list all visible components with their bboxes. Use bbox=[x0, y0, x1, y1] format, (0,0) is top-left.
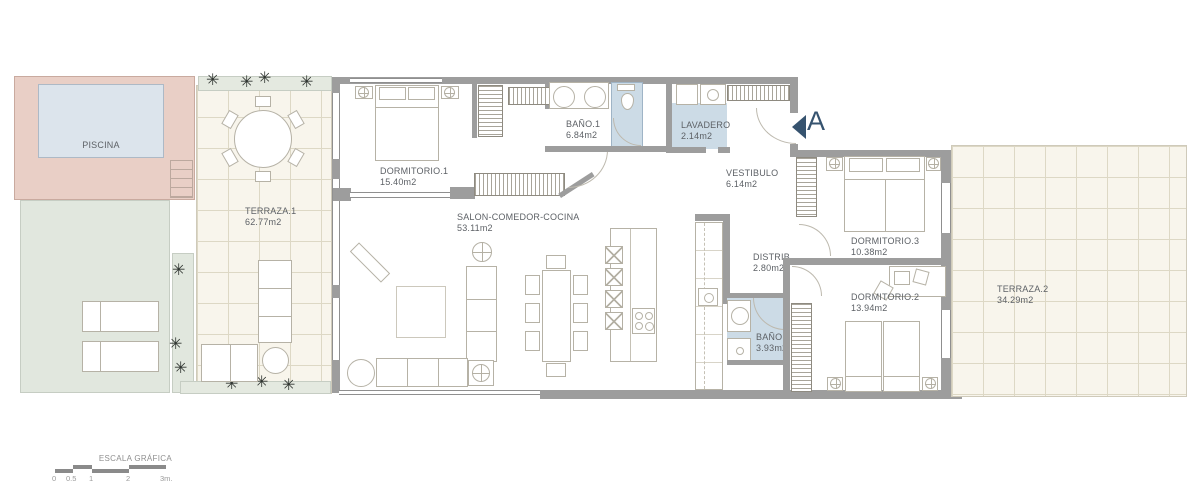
plant-icon: ✳ bbox=[258, 70, 271, 86]
sofa-cushion-line bbox=[407, 359, 408, 386]
room-label-vestibulo: VESTIBULO6.14m2 bbox=[726, 168, 778, 190]
dining-chair bbox=[525, 303, 540, 323]
wall-left bbox=[332, 360, 340, 393]
dorm1-pillow bbox=[408, 87, 435, 100]
bar-stool bbox=[605, 246, 623, 264]
washer-drum bbox=[707, 89, 719, 101]
sofa bbox=[466, 266, 497, 362]
window-dorm2-east bbox=[941, 310, 951, 358]
scale-bar-segment bbox=[129, 465, 166, 469]
room-label-dormitorio3: DORMITORIO.310.38m2 bbox=[851, 236, 919, 258]
dorm3-wardrobe bbox=[796, 157, 817, 217]
sofa-cushion-line bbox=[259, 288, 291, 289]
dining-chair bbox=[573, 331, 588, 351]
scale-bar-segment bbox=[73, 465, 92, 469]
sun-lounger bbox=[82, 341, 159, 372]
bed-blanket-line bbox=[376, 107, 438, 108]
sofa bbox=[376, 358, 468, 387]
wall-bano1-south bbox=[545, 146, 670, 152]
plant-icon: ✳ bbox=[174, 360, 187, 376]
sun-lounger bbox=[82, 301, 159, 332]
room-terraza2 bbox=[951, 145, 1187, 397]
plant-icon: ✳ bbox=[206, 72, 219, 88]
wall-kitchen-right bbox=[723, 214, 730, 304]
entrance-marker-label: A bbox=[807, 108, 825, 135]
bed-center-line bbox=[885, 179, 886, 231]
kitchen-sink bbox=[698, 288, 718, 306]
dorm2-bed bbox=[883, 321, 920, 392]
wall-bano2-bottom bbox=[727, 360, 787, 365]
lamp-icon bbox=[358, 87, 369, 98]
room-label-salon: SALON-COMEDOR-COCINA53.11m2 bbox=[457, 212, 580, 234]
lavadero-counter bbox=[676, 84, 698, 105]
dorm2-wardrobe bbox=[791, 303, 812, 392]
outdoor-chair bbox=[255, 96, 271, 107]
washing-machine bbox=[700, 84, 726, 105]
sofa-cushion-line bbox=[467, 331, 496, 332]
floor-plan: PISCINA ✳ ✳ ✳ ✳ ✳ ✳ ✳ ✳ ✳ ✳ TERRAZA.162.… bbox=[0, 0, 1200, 494]
plant-icon: ✳ bbox=[300, 74, 313, 90]
dining-chair bbox=[573, 303, 588, 323]
bano2-sink bbox=[727, 300, 751, 332]
lamp-icon bbox=[829, 158, 840, 169]
dining-chair bbox=[546, 255, 566, 269]
bano2-basin bbox=[731, 307, 749, 325]
room-label-dormitorio1: DORMITORIO.115.40m2 bbox=[380, 166, 448, 188]
scale-tick: 2 bbox=[126, 474, 130, 483]
partition-dorm1 bbox=[350, 192, 452, 198]
kitchen-counter bbox=[695, 222, 723, 390]
sofa-cushion-line bbox=[230, 345, 231, 381]
wall-left bbox=[332, 77, 340, 93]
outdoor-round-table bbox=[234, 110, 292, 168]
wall-lavadero-south bbox=[666, 147, 706, 153]
wall-stub bbox=[450, 187, 475, 199]
bano1-sink bbox=[584, 86, 606, 108]
scale-tick: 1 bbox=[89, 474, 93, 483]
window-top-dorm1 bbox=[350, 78, 442, 83]
wall-left bbox=[332, 159, 340, 179]
scale-bar-segment bbox=[55, 469, 73, 473]
bano1-sink bbox=[553, 86, 575, 108]
room-label-piscina: PISCINA bbox=[39, 140, 163, 151]
room-label-dormitorio2: DORMITORIO.213.94m2 bbox=[851, 292, 919, 314]
desk-item bbox=[894, 271, 910, 285]
burner bbox=[645, 322, 654, 331]
dining-chair bbox=[546, 363, 566, 377]
toilet-cistern bbox=[617, 84, 635, 91]
room-label-bano1: BAÑO.16.84m2 bbox=[566, 119, 600, 141]
window-left bbox=[332, 93, 340, 159]
dorm3-pillow bbox=[886, 158, 920, 172]
dining-chair bbox=[525, 275, 540, 295]
wall-lavadero-south bbox=[718, 147, 730, 153]
lounger-headrest-line bbox=[100, 342, 101, 371]
pouf bbox=[347, 359, 375, 387]
plant-icon: ✳ bbox=[172, 262, 185, 278]
closet-rack bbox=[478, 85, 503, 137]
pool: PISCINA bbox=[38, 84, 164, 158]
outdoor-sofa bbox=[201, 344, 258, 382]
scale-title: ESCALA GRÁFICA bbox=[55, 454, 172, 463]
outdoor-side-table bbox=[262, 347, 289, 374]
bed-blanket-line bbox=[846, 376, 881, 377]
room-label-terraza2: TERRAZA.234.29m2 bbox=[997, 284, 1048, 306]
bar-stool bbox=[605, 312, 623, 330]
sofa-cushion-line bbox=[259, 316, 291, 317]
wall-closet-left bbox=[472, 83, 477, 138]
dining-chair bbox=[573, 275, 588, 295]
rug bbox=[396, 286, 446, 338]
desk-item bbox=[912, 268, 929, 285]
burner bbox=[635, 322, 643, 330]
faucet bbox=[704, 293, 714, 303]
window-dorm3-east bbox=[941, 183, 951, 233]
dorm3-pillow bbox=[849, 158, 883, 172]
burner bbox=[635, 312, 643, 320]
dorm2-bed bbox=[845, 321, 882, 392]
window-left bbox=[332, 298, 340, 360]
deck-steps bbox=[170, 160, 193, 198]
corridor-wardrobe bbox=[474, 173, 565, 196]
wall-stub bbox=[333, 188, 351, 201]
entrance-arrow-icon bbox=[792, 115, 806, 139]
cooktop bbox=[632, 308, 655, 334]
burner bbox=[645, 312, 653, 320]
dining-chair bbox=[525, 331, 540, 351]
lamp-icon bbox=[830, 378, 841, 389]
wall-left bbox=[332, 285, 340, 298]
dorm1-pillow bbox=[379, 87, 406, 100]
upper-cabinet-dashline bbox=[704, 223, 706, 389]
outdoor-sofa bbox=[258, 260, 292, 343]
island-divider bbox=[630, 229, 631, 361]
lamp-icon bbox=[444, 87, 455, 98]
plant-icon: ✳ bbox=[240, 74, 253, 90]
room-label-lavadero: LAVADERO2.14m2 bbox=[681, 120, 730, 142]
lounger-headrest-line bbox=[100, 302, 101, 331]
dining-table bbox=[542, 270, 571, 362]
scale-tick: 0.5 bbox=[66, 474, 76, 483]
wall-dorm2-west bbox=[783, 265, 790, 392]
wall-dorm3-dorm2 bbox=[783, 258, 950, 265]
scale-tick: 3m. bbox=[160, 474, 173, 483]
room-label-terraza1: TERRAZA.162.77m2 bbox=[245, 206, 296, 228]
scale-tick: 0 bbox=[52, 474, 56, 483]
entry-closet bbox=[727, 85, 790, 101]
bed-blanket-line bbox=[884, 376, 919, 377]
shower-drain bbox=[736, 347, 744, 355]
bar-stool bbox=[605, 268, 623, 286]
sofa-cushion-line bbox=[438, 359, 439, 386]
scale-bar-segment bbox=[92, 469, 129, 473]
lamp-icon bbox=[928, 158, 939, 169]
bar-stool bbox=[605, 290, 623, 308]
bano2-shower bbox=[727, 338, 751, 362]
end-table-lamp bbox=[472, 364, 490, 382]
closet-rack bbox=[508, 87, 550, 105]
lamp-icon bbox=[925, 378, 936, 389]
glass-wall-salon-south bbox=[339, 390, 542, 395]
plant-icon: ✳ bbox=[169, 336, 182, 352]
sofa-cushion-line bbox=[467, 299, 496, 300]
outdoor-chair bbox=[255, 171, 271, 182]
plant-icon: ✳ bbox=[282, 377, 295, 393]
side-table bbox=[472, 242, 492, 262]
